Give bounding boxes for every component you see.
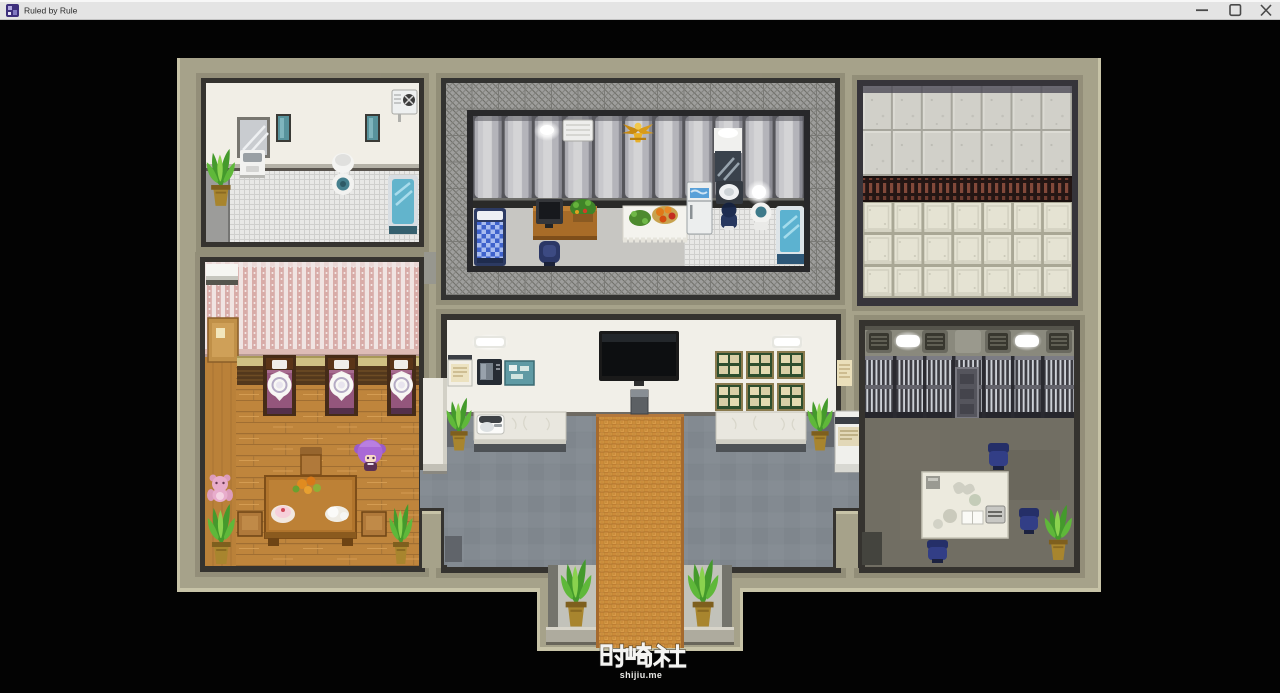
svg-text:Ruled by Rule: Ruled by Rule <box>24 6 78 16</box>
svg-text:shijiu.me: shijiu.me <box>620 670 663 680</box>
